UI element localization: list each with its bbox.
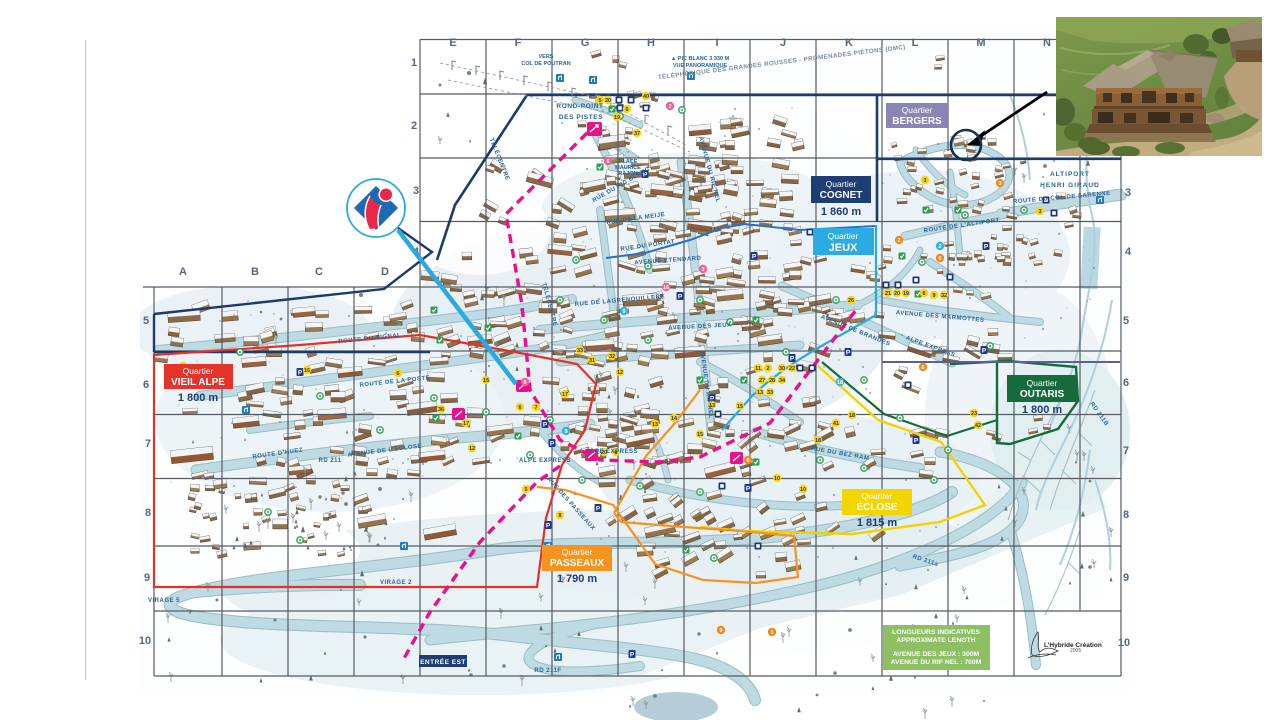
- svg-text:19: 19: [614, 115, 620, 121]
- svg-text:PASSEAUX: PASSEAUX: [550, 558, 605, 569]
- svg-text:10: 10: [1118, 637, 1130, 649]
- svg-text:14: 14: [671, 416, 678, 422]
- svg-text:6: 6: [523, 380, 526, 386]
- svg-text:3: 3: [1125, 187, 1131, 199]
- svg-text:OUTARIS: OUTARIS: [1020, 389, 1065, 400]
- svg-text:ÉCLOSE: ÉCLOSE: [856, 500, 897, 513]
- svg-text:APPROXIMATE LENGTH: APPROXIMATE LENGTH: [896, 637, 975, 644]
- svg-text:3: 3: [413, 185, 419, 197]
- svg-text:2: 2: [938, 244, 941, 250]
- svg-text:15: 15: [483, 378, 489, 384]
- svg-text:11: 11: [755, 366, 761, 372]
- svg-text:2005: 2005: [1070, 648, 1081, 654]
- svg-text:1: 1: [411, 57, 417, 69]
- svg-text:L: L: [912, 37, 919, 49]
- svg-text:1 860 m: 1 860 m: [821, 206, 862, 218]
- svg-text:31: 31: [589, 358, 595, 364]
- svg-text:30: 30: [779, 366, 785, 372]
- svg-text:10: 10: [774, 476, 780, 482]
- svg-text:10: 10: [800, 487, 806, 493]
- svg-text:Quartier: Quartier: [828, 231, 859, 241]
- svg-text:17: 17: [463, 421, 469, 427]
- svg-text:ALTIPORT: ALTIPORT: [1050, 171, 1090, 178]
- svg-text:6: 6: [922, 291, 925, 297]
- svg-text:16: 16: [304, 368, 310, 374]
- svg-text:M: M: [976, 37, 985, 49]
- svg-text:3: 3: [701, 267, 704, 273]
- svg-text:LONGUEURS INDICATIVES: LONGUEURS INDICATIVES: [892, 629, 980, 636]
- svg-text:AVENUE DES JEUX : 300M: AVENUE DES JEUX : 300M: [893, 651, 980, 658]
- svg-text:I: I: [715, 37, 718, 49]
- svg-text:41: 41: [833, 421, 839, 427]
- svg-text:13: 13: [652, 422, 658, 428]
- svg-text:J: J: [780, 37, 786, 49]
- svg-text:9: 9: [932, 293, 935, 299]
- svg-text:27: 27: [759, 378, 765, 384]
- svg-text:33: 33: [767, 390, 773, 396]
- svg-text:BERGERS: BERGERS: [892, 116, 942, 127]
- svg-text:3: 3: [1038, 209, 1041, 215]
- svg-text:12: 12: [469, 446, 475, 452]
- svg-text:D: D: [381, 266, 389, 278]
- svg-text:RAJON: RAJON: [618, 171, 637, 177]
- svg-text:8: 8: [145, 507, 151, 519]
- svg-text:Quartier: Quartier: [862, 491, 893, 501]
- svg-text:32: 32: [941, 293, 947, 299]
- svg-text:▲ PIC BLANC 3 330 M: ▲ PIC BLANC 3 330 M: [671, 56, 730, 62]
- svg-text:VIRAGE 5: VIRAGE 5: [148, 598, 180, 604]
- svg-text:5: 5: [1123, 315, 1129, 327]
- svg-text:Quartier: Quartier: [826, 179, 857, 189]
- svg-text:1 790 m: 1 790 m: [557, 573, 598, 585]
- svg-text:6: 6: [921, 365, 924, 371]
- svg-text:32: 32: [609, 354, 615, 360]
- svg-text:VIRAGE 2: VIRAGE 2: [380, 580, 412, 586]
- svg-text:5: 5: [524, 487, 527, 493]
- svg-text:19: 19: [903, 291, 909, 297]
- svg-text:6: 6: [606, 159, 609, 165]
- svg-text:6: 6: [746, 458, 749, 464]
- svg-text:Quartier: Quartier: [183, 366, 214, 376]
- svg-text:G: G: [581, 37, 590, 49]
- svg-text:9: 9: [144, 572, 150, 584]
- svg-text:ROND-POINT: ROND-POINT: [556, 103, 603, 110]
- svg-text:AVENUE DU RIF NEL : 700M: AVENUE DU RIF NEL : 700M: [891, 659, 982, 666]
- svg-text:B: B: [251, 266, 259, 278]
- svg-text:36: 36: [438, 407, 444, 413]
- svg-text:10: 10: [139, 635, 151, 647]
- svg-text:5: 5: [143, 315, 149, 327]
- svg-text:26: 26: [848, 298, 854, 304]
- svg-text:HENRI GIRAUD: HENRI GIRAUD: [1040, 182, 1100, 189]
- svg-text:9: 9: [719, 628, 722, 634]
- svg-text:9: 9: [1123, 572, 1129, 584]
- svg-text:6: 6: [625, 107, 628, 113]
- svg-text:16: 16: [663, 285, 669, 291]
- svg-text:20: 20: [605, 98, 611, 104]
- svg-text:6: 6: [1123, 377, 1129, 389]
- svg-text:E: E: [449, 37, 456, 49]
- svg-text:22: 22: [789, 366, 795, 372]
- svg-text:K: K: [845, 37, 853, 49]
- svg-text:1 815 m: 1 815 m: [857, 517, 898, 529]
- svg-text:20: 20: [894, 291, 900, 297]
- svg-text:Quartier: Quartier: [562, 547, 593, 557]
- svg-text:ALPE EXPRESS: ALPE EXPRESS: [586, 449, 638, 455]
- svg-text:JEUX: JEUX: [829, 242, 858, 254]
- svg-text:33: 33: [577, 348, 583, 354]
- svg-text:18: 18: [815, 438, 821, 444]
- svg-text:9: 9: [622, 309, 625, 315]
- svg-text:34: 34: [779, 378, 786, 384]
- svg-text:Quartier: Quartier: [902, 105, 933, 115]
- svg-text:6: 6: [518, 405, 521, 411]
- svg-text:ALPE EXPRESS: ALPE EXPRESS: [519, 458, 571, 464]
- svg-text:3: 3: [998, 181, 1001, 187]
- svg-text:COGNET: COGNET: [820, 190, 863, 201]
- svg-text:6: 6: [396, 371, 399, 377]
- svg-text:VERS: VERS: [539, 54, 554, 60]
- svg-text:23: 23: [971, 411, 977, 417]
- svg-text:15: 15: [697, 432, 703, 438]
- svg-text:RD 211: RD 211: [318, 458, 341, 464]
- svg-text:8: 8: [558, 513, 561, 519]
- svg-text:9: 9: [564, 429, 567, 435]
- svg-text:DES PISTES: DES PISTES: [559, 114, 603, 121]
- svg-text:12: 12: [617, 370, 623, 376]
- svg-text:ENTRÉE EST: ENTRÉE EST: [420, 657, 466, 666]
- svg-text:N: N: [1043, 37, 1051, 49]
- svg-text:RD 211F: RD 211F: [534, 668, 561, 674]
- svg-text:8: 8: [1123, 509, 1129, 521]
- svg-text:2: 2: [668, 104, 671, 110]
- svg-text:37: 37: [634, 131, 640, 137]
- svg-text:6: 6: [938, 256, 941, 262]
- svg-text:21: 21: [885, 291, 891, 297]
- svg-text:C: C: [315, 266, 323, 278]
- svg-text:18: 18: [837, 380, 843, 386]
- svg-text:18: 18: [849, 413, 855, 419]
- svg-text:7: 7: [145, 438, 151, 450]
- svg-text:42: 42: [975, 423, 981, 429]
- svg-text:1 800 m: 1 800 m: [1022, 404, 1063, 416]
- svg-text:15: 15: [737, 404, 743, 410]
- svg-text:2: 2: [897, 238, 900, 244]
- svg-text:28: 28: [769, 378, 775, 384]
- svg-text:6: 6: [143, 379, 149, 391]
- svg-text:17: 17: [562, 392, 568, 398]
- svg-text:H: H: [647, 37, 655, 49]
- svg-text:F: F: [515, 37, 522, 49]
- svg-text:7: 7: [1123, 445, 1129, 457]
- svg-text:3: 3: [923, 178, 926, 184]
- svg-text:1: 1: [770, 630, 773, 636]
- svg-text:13: 13: [757, 390, 763, 396]
- svg-text:Quartier: Quartier: [1027, 378, 1058, 388]
- svg-text:COL DE POUTRAN: COL DE POUTRAN: [521, 61, 570, 67]
- svg-text:2: 2: [766, 366, 769, 372]
- svg-text:7: 7: [534, 405, 537, 411]
- svg-text:A: A: [179, 266, 187, 278]
- svg-text:2: 2: [411, 120, 417, 132]
- svg-text:VIEIL ALPE: VIEIL ALPE: [171, 377, 225, 388]
- svg-text:40: 40: [643, 94, 649, 100]
- svg-text:4: 4: [1125, 246, 1132, 258]
- svg-text:1 800 m: 1 800 m: [178, 392, 219, 404]
